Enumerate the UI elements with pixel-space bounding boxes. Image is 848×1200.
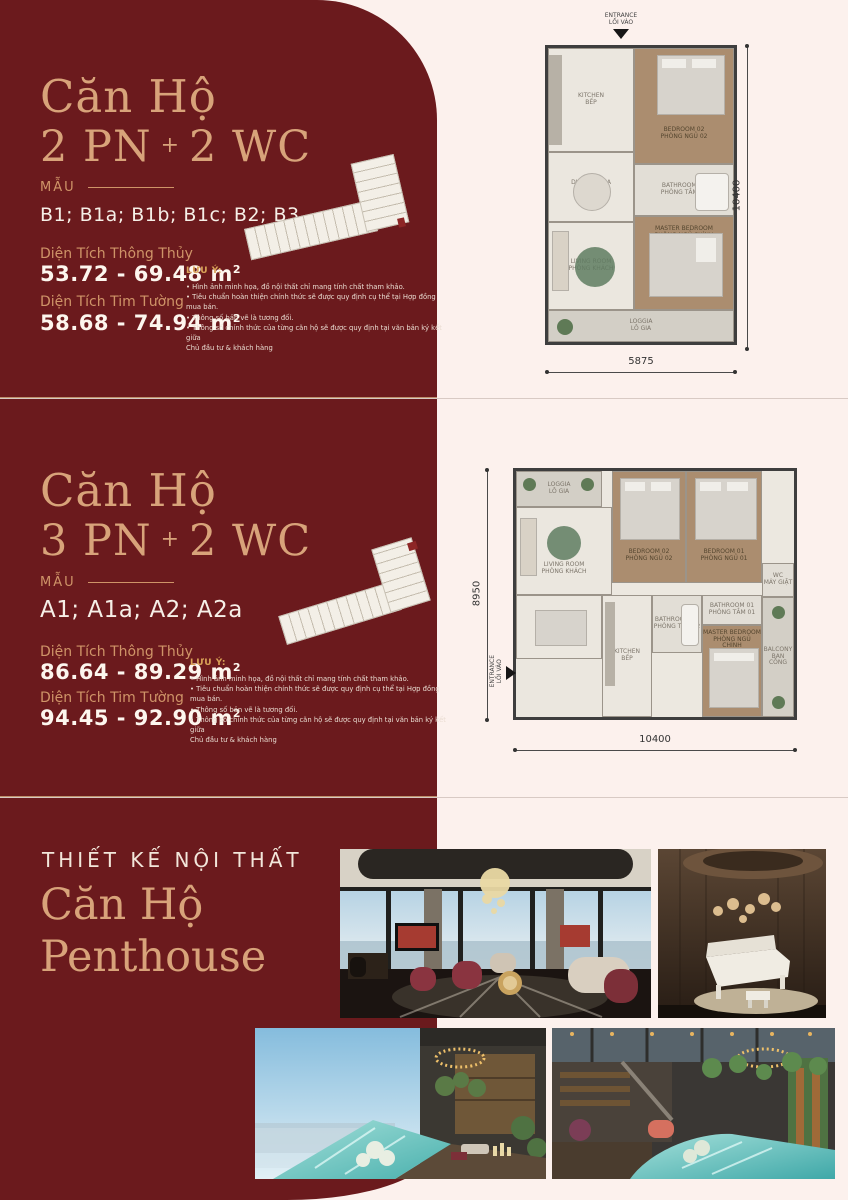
note-item: • Thông số bản vẽ là tương đối. — [186, 313, 444, 323]
plus-sign: + — [161, 527, 180, 552]
notes-heading: LƯU Ý: — [186, 266, 444, 276]
pool-terrace-photo-right — [552, 1028, 835, 1179]
bed-graphic — [649, 233, 723, 297]
mau-label: MẪU — [40, 575, 76, 590]
notes-heading: LƯU Ý: — [190, 658, 448, 668]
dimension-dot — [485, 468, 489, 472]
mau-underline — [88, 582, 174, 583]
dimension-value-width: 5875 — [545, 356, 737, 367]
dimension-line-vertical — [747, 46, 748, 349]
note-item: • Thông số bản vẽ là tương đối. — [190, 705, 448, 715]
pillow-graphic — [714, 653, 754, 661]
brochure-page: Căn Hộ 2 PN+2 WC MẪU B1; B1a; B1b; B1c; … — [0, 0, 848, 1200]
pillow-graphic — [625, 482, 645, 491]
panel1-bedrooms: 2 PN — [40, 122, 152, 172]
rug-graphic — [575, 247, 615, 287]
area-gross-label: Diện Tích Tim Tường — [40, 294, 184, 310]
plant-graphic — [581, 478, 594, 491]
panel1-title-text: Căn Hộ — [40, 70, 217, 123]
plus-sign: + — [161, 133, 180, 158]
bed-graphic — [709, 648, 759, 708]
gold-divider — [0, 397, 437, 398]
room-bathroom-01: BATHROOM 01 PHÒNG TẮM 01 — [702, 595, 762, 625]
rug-graphic — [547, 526, 581, 560]
room-label: BATHROOM 01 PHÒNG TẮM 01 — [709, 603, 755, 617]
room-kitchen: KITCHEN BẾP — [602, 595, 652, 717]
note-item: • Hình ảnh minh họa, đồ nội thất chỉ man… — [186, 282, 444, 292]
room-label: LOGGIA LÔ GIA — [629, 319, 652, 333]
room-kitchen: KITCHEN BẾP — [548, 48, 634, 152]
dining-table-graphic — [573, 173, 611, 211]
kitchen-counter — [605, 602, 615, 686]
sofa-graphic — [520, 518, 537, 576]
room-loggia: LOGGIA LÔ GIA — [548, 310, 734, 342]
mau-underline — [88, 187, 174, 188]
bed-graphic — [620, 478, 680, 540]
dimension-line-vertical — [487, 470, 488, 720]
dimension-dot — [745, 44, 749, 48]
piano-room-photo-image — [658, 849, 826, 1018]
room-label: BALCONY BAN CÔNG — [763, 647, 793, 668]
room-bedroom-01: BEDROOM 01 PHÒNG NGỦ 01 — [686, 471, 762, 583]
panel2-title-line1: Căn Hộ — [40, 468, 217, 513]
gold-divider — [0, 796, 437, 797]
entrance-label: ENTRANCE LỐI VÀO — [489, 641, 503, 701]
dimension-dot — [733, 370, 737, 374]
bed-graphic — [695, 478, 757, 540]
area-gross-range: 94.45 - 92.90 — [40, 706, 203, 730]
pillow-graphic — [696, 238, 716, 262]
keyplan-locator — [246, 158, 436, 270]
pillow-graphic — [692, 59, 716, 68]
bathtub-graphic — [681, 604, 699, 646]
area-gross-label: Diện Tích Tim Tường — [40, 690, 184, 706]
note-item: • Thông số chính thức của từng căn hộ sẽ… — [190, 715, 448, 746]
room-bathroom-02: BATHROOM 02 PHÒNG TẮM 02 — [634, 164, 734, 216]
room-dining: DINING AREA BÀN ĂN — [516, 595, 602, 659]
panel2-title-line2: 3 PN+2 WC — [40, 520, 311, 563]
dimension-dot — [513, 748, 517, 752]
keyplan-wing — [244, 200, 378, 260]
floorplan-3pn: LOGGIA LÔ GIA LIVING ROOM PHÒNG KHÁCH BE… — [513, 468, 797, 720]
plant-graphic — [772, 606, 785, 619]
pillow-graphic — [727, 482, 748, 491]
plant-graphic — [523, 478, 536, 491]
dimension-value-height: 8950 — [472, 569, 483, 619]
note-item: • Hình ảnh minh họa, đồ nội thất chỉ man… — [190, 674, 448, 684]
pool-photo-left-image — [255, 1028, 546, 1179]
area-gross-range: 58.68 - 74.94 — [40, 311, 203, 335]
dimension-dot — [485, 718, 489, 722]
dimension-dot — [545, 370, 549, 374]
plant-graphic — [557, 319, 573, 335]
room-bedroom-02: BEDROOM 02 PHÒNG NGỦ 02 — [634, 48, 734, 164]
note-item: • Tiêu chuẩn hoàn thiện chính thức sẽ đư… — [186, 292, 444, 312]
entrance-arrow-icon — [613, 29, 629, 39]
mau-label: MẪU — [40, 180, 76, 195]
pillow-graphic — [651, 482, 671, 491]
dimension-value-height: 10400 — [732, 171, 743, 221]
dimension-line-horizontal — [515, 750, 795, 751]
room-living: LIVING ROOM PHÒNG KHÁCH — [548, 222, 634, 310]
room-master-bedroom: MASTER BEDROOM PHÒNG NGỦ CHÍNH — [702, 625, 762, 717]
room-dining: DINING AREA BÀN ĂN — [548, 152, 634, 222]
area-clear-label: Diện Tích Thông Thủy — [40, 246, 193, 262]
pool-terrace-photo-left — [255, 1028, 546, 1179]
disclaimer-notes: LƯU Ý: • Hình ảnh minh họa, đồ nội thất … — [186, 266, 444, 353]
pillow-graphic — [662, 59, 686, 68]
room-label: BEDROOM 02 PHÒNG NGỦ 02 — [626, 549, 673, 563]
dimension-dot — [793, 748, 797, 752]
area-clear-range: 86.64 - 89.29 — [40, 660, 203, 684]
dimension-value-width: 10400 — [513, 734, 797, 745]
panel2-title-text: Căn Hộ — [40, 464, 217, 517]
penthouse-subtitle: THIẾT KẾ NỘI THẤT — [42, 848, 303, 872]
area-clear-range: 53.72 - 69.48 — [40, 262, 203, 286]
dining-table-graphic — [535, 610, 587, 646]
living-room-photo — [340, 849, 651, 1018]
room-label: KITCHEN BẾP — [614, 649, 640, 663]
dimension-dot — [745, 347, 749, 351]
keyplan-locator — [280, 540, 440, 652]
panel1-title-line1: Căn Hộ — [40, 74, 217, 119]
room-balcony: BALCONY BAN CÔNG — [762, 597, 794, 717]
entrance-label: ENTRANCE LỐI VÀO — [586, 12, 656, 26]
sofa-graphic — [552, 231, 569, 291]
penthouse-title-line2: Penthouse — [40, 936, 266, 979]
panel2-mau-row: MẪU — [40, 575, 174, 590]
disclaimer-notes: LƯU Ý: • Hình ảnh minh họa, đồ nội thất … — [190, 658, 448, 745]
piano-room-photo — [658, 849, 826, 1018]
penthouse-title-line1: Căn Hộ — [40, 884, 203, 927]
room-entry-hall — [516, 659, 602, 717]
room-master-bedroom: MASTER BEDROOM PHÒNG NGỦ CHÍNH — [634, 216, 734, 310]
entrance-arrow-icon — [506, 666, 516, 680]
living-room-photo-image — [340, 849, 651, 1018]
area-clear-label: Diện Tích Thông Thủy — [40, 644, 193, 660]
bathtub-graphic — [695, 173, 729, 211]
room-label: WC MÁY GIẶT — [764, 573, 793, 587]
note-item: • Tiêu chuẩn hoàn thiện chính thức sẽ đư… — [190, 684, 448, 704]
keyplan-unit-marker — [407, 541, 418, 551]
plant-graphic — [772, 696, 785, 709]
room-loggia: LOGGIA LÔ GIA — [516, 471, 602, 507]
room-bathroom-02: BATHROOM 02 PHÒNG TẮM 02 — [652, 595, 702, 653]
bed-graphic — [657, 55, 725, 115]
room-label: LIVING ROOM PHÒNG KHÁCH — [541, 562, 586, 576]
room-label: BEDROOM 02 PHÒNG NGỦ 02 — [661, 127, 708, 141]
panel1-mau-row: MẪU — [40, 180, 174, 195]
floorplan-2pn: KITCHEN BẾP BEDROOM 02 PHÒNG NGỦ 02 BATH… — [545, 45, 737, 345]
room-label: KITCHEN BẾP — [578, 93, 604, 107]
pillow-graphic — [700, 482, 721, 491]
room-living: LIVING ROOM PHÒNG KHÁCH — [516, 507, 612, 595]
kitchen-counter — [549, 55, 562, 145]
room-label: BEDROOM 01 PHÒNG NGỦ 01 — [701, 549, 748, 563]
panel2-model-list: A1; A1a; A2; A2a — [40, 597, 243, 623]
room-utility: WC MÁY GIẶT — [762, 563, 794, 597]
panel2-bedrooms: 3 PN — [40, 516, 152, 566]
room-label: LOGGIA LÔ GIA — [547, 482, 570, 496]
pool-photo-right-image — [552, 1028, 835, 1179]
note-item: • Thông số chính thức của từng căn hộ sẽ… — [186, 323, 444, 354]
room-bedroom-02: BEDROOM 02 PHÒNG NGỦ 02 — [612, 471, 686, 583]
dimension-line-horizontal — [547, 372, 735, 373]
